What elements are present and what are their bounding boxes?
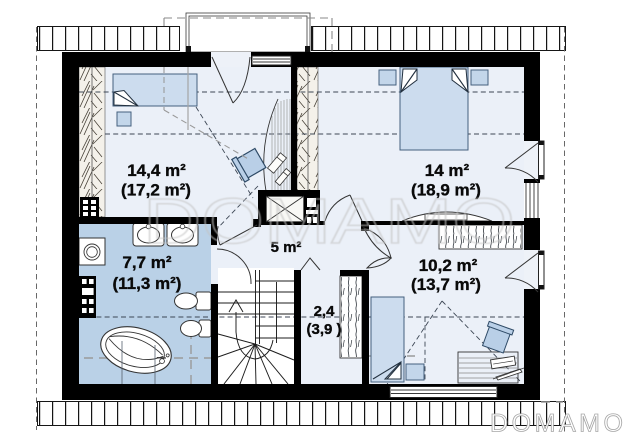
svg-text:10,2 m²: 10,2 m² [419, 256, 478, 275]
svg-text:14 m²: 14 m² [425, 161, 470, 180]
svg-text:(3,9 ): (3,9 ) [306, 321, 341, 338]
svg-text:DOMAMO: DOMAMO [143, 185, 515, 257]
svg-text:(11,3 m²): (11,3 m²) [113, 274, 182, 293]
svg-text:14,4 m²: 14,4 m² [127, 161, 186, 180]
svg-text:2,4: 2,4 [314, 303, 336, 320]
svg-text:(13,7 m²): (13,7 m²) [411, 275, 481, 294]
